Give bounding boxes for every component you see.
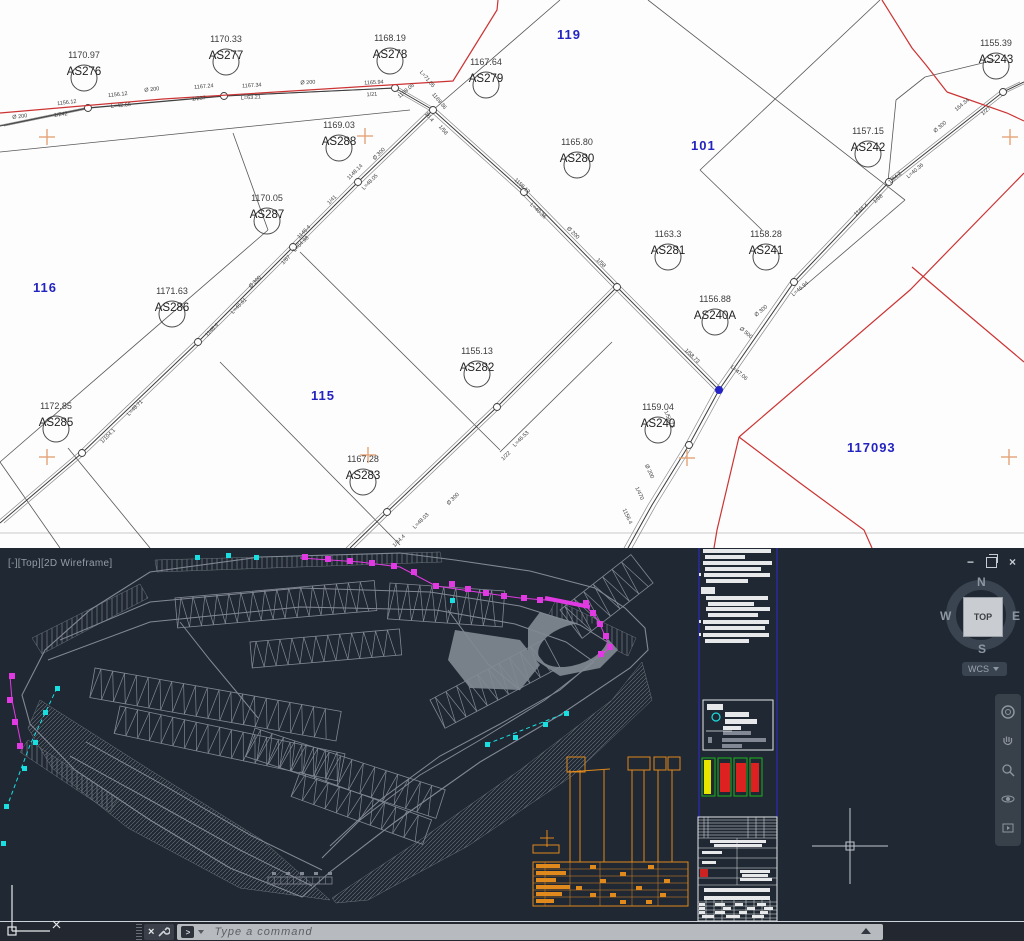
survey-plan-image: Ø 2001156.121/2421156.12Ø 200L=42.661167… <box>0 0 1024 548</box>
survey-point-cyan <box>195 555 200 560</box>
svg-text:Ø 200: Ø 200 <box>300 80 315 87</box>
manhole-id: AS287 <box>250 209 285 221</box>
viewcube-top-face[interactable]: TOP <box>963 597 1003 637</box>
manhole-id: AS279 <box>469 73 504 85</box>
survey-point-magenta <box>17 743 23 749</box>
survey-point-magenta <box>433 583 439 589</box>
manhole-elevation: 1165.80 <box>561 137 593 147</box>
note-text-bar <box>706 607 770 611</box>
survey-point-magenta <box>598 651 604 657</box>
wcs-label: WCS <box>968 664 989 674</box>
survey-point-magenta <box>603 633 609 639</box>
pipe-node <box>430 107 437 114</box>
restore-icon[interactable] <box>986 557 997 568</box>
chart-bar-yellow <box>704 760 711 794</box>
manhole-id: AS242 <box>851 142 886 154</box>
survey-point-cyan <box>43 710 48 715</box>
survey-point-magenta <box>7 697 13 703</box>
svg-text:1/21: 1/21 <box>366 92 377 99</box>
manhole-id: AS283 <box>346 470 381 482</box>
pipe-node <box>384 509 391 516</box>
manhole-id: AS277 <box>209 50 244 62</box>
note-text-bar <box>703 549 771 553</box>
recent-commands-caret-icon[interactable] <box>198 930 204 934</box>
close-icon[interactable]: × <box>1009 556 1016 568</box>
parcel-number: 117093 <box>847 440 896 455</box>
app-window: Ø 2001156.121/2421156.12Ø 200L=42.661167… <box>0 0 1024 941</box>
viewcube-north[interactable]: N <box>977 575 986 589</box>
parcel-number: 101 <box>691 138 716 153</box>
viewcube-east[interactable]: E <box>1012 609 1020 623</box>
note-text-bar <box>706 596 768 600</box>
manhole-id: AS243 <box>979 54 1014 66</box>
survey-point-magenta <box>347 558 353 564</box>
command-input[interactable]: > Type a command <box>177 924 883 940</box>
note-text-bar <box>705 555 745 559</box>
manhole-elevation: 1158.28 <box>750 229 782 239</box>
customize-wrench-icon[interactable] <box>156 925 170 939</box>
manhole-elevation: 1172.85 <box>40 401 72 411</box>
palette-buttons: × <box>144 924 174 940</box>
manhole-elevation: 1157.15 <box>852 126 884 136</box>
manhole-id: AS280 <box>560 153 595 165</box>
survey-point-cyan <box>22 766 27 771</box>
navigation-wheel-icon[interactable] <box>1000 704 1016 720</box>
note-text-bar <box>699 633 701 636</box>
chart-bar-red <box>720 763 730 792</box>
pipe-node <box>392 85 399 92</box>
survey-point-magenta <box>465 586 471 592</box>
parcel-number: 116 <box>33 280 57 295</box>
manhole-id: AS240 <box>641 418 676 430</box>
pipe-node <box>355 179 362 186</box>
survey-point-magenta <box>483 590 489 596</box>
survey-point-cyan <box>513 735 518 740</box>
manhole-id: AS276 <box>67 66 102 78</box>
viewcube-west[interactable]: W <box>940 609 951 623</box>
survey-point-magenta <box>302 554 308 560</box>
manhole-elevation: 1163.3 <box>655 229 682 239</box>
survey-point-magenta <box>9 673 15 679</box>
pipe-node <box>79 450 86 457</box>
svg-text:1/237: 1/237 <box>192 95 206 102</box>
viewport-controls-label[interactable]: [-][Top][2D Wireframe] <box>8 558 112 569</box>
note-text-bar <box>703 620 769 624</box>
note-text-bar <box>701 587 715 594</box>
pipe-node <box>1000 89 1007 96</box>
survey-point-magenta <box>12 719 18 725</box>
survey-point-magenta <box>537 597 543 603</box>
manhole-elevation: 1159.04 <box>642 402 674 412</box>
manhole-id: AS241 <box>749 245 784 257</box>
manhole-elevation: 1171.63 <box>156 286 188 296</box>
ucs-icon <box>0 879 70 941</box>
pipe-node <box>494 404 501 411</box>
command-placeholder[interactable]: Type a command <box>214 926 312 938</box>
manhole-id: AS281 <box>651 245 686 257</box>
manhole-elevation: 1170.33 <box>210 34 242 44</box>
note-text-bar <box>699 620 701 623</box>
parcel-number: 119 <box>557 27 581 42</box>
survey-point-cyan <box>4 804 9 809</box>
viewcube-south[interactable]: S <box>978 642 986 656</box>
survey-point-magenta <box>369 560 375 566</box>
palette-grip[interactable] <box>136 924 142 940</box>
manhole-id: AS282 <box>460 362 495 374</box>
pipe-node <box>614 284 621 291</box>
note-text-bar <box>708 613 758 617</box>
survey-point-magenta <box>325 556 331 562</box>
manhole-elevation: 1170.05 <box>251 193 283 203</box>
note-text-bar <box>706 579 748 583</box>
survey-point-cyan <box>226 553 231 558</box>
survey-point-cyan <box>33 740 38 745</box>
manhole-elevation: 1167.64 <box>470 57 502 67</box>
survey-point-cyan <box>450 598 455 603</box>
survey-point-cyan <box>254 555 259 560</box>
manhole-elevation: 1155.13 <box>461 346 493 356</box>
survey-plan-svg: Ø 2001156.121/2421156.12Ø 200L=42.661167… <box>0 0 1024 548</box>
note-text-bar <box>705 567 761 571</box>
parcel-number: 115 <box>311 388 335 403</box>
navigation-bar[interactable] <box>995 694 1021 846</box>
chart-bar-red <box>736 763 746 792</box>
survey-point-magenta <box>597 621 603 627</box>
note-text-bar <box>703 561 772 565</box>
manhole-elevation: 1155.39 <box>980 38 1012 48</box>
pipe-node <box>221 93 228 100</box>
command-row: × > Type a command <box>0 921 1024 941</box>
junction-dot <box>715 386 723 394</box>
command-palette[interactable]: × > Type a command <box>136 924 883 940</box>
note-text-bar <box>708 602 754 606</box>
manhole-id: AS286 <box>155 302 190 314</box>
survey-point-magenta <box>449 581 455 587</box>
survey-point-cyan <box>564 711 569 716</box>
pipe-node <box>195 339 202 346</box>
manhole-id: AS285 <box>39 417 74 429</box>
manhole-id: AS278 <box>373 49 408 61</box>
manhole-id: AS240A <box>694 310 737 322</box>
showmotion-icon[interactable] <box>1000 820 1016 836</box>
survey-point-cyan <box>543 722 548 727</box>
wcs-dropdown[interactable]: WCS <box>962 662 1007 676</box>
minimize-icon[interactable]: − <box>967 556 974 568</box>
survey-point-cyan <box>55 686 60 691</box>
manhole-elevation: 1170.97 <box>68 50 100 60</box>
note-text-bar <box>705 626 765 630</box>
pipe-node <box>791 279 798 286</box>
manhole-elevation: 1156.88 <box>699 294 731 304</box>
acad-canvas[interactable] <box>0 548 1024 941</box>
survey-point-magenta <box>501 593 507 599</box>
chart-bar-red <box>751 763 759 792</box>
manhole-id: AS288 <box>322 136 357 148</box>
command-prompt-icon[interactable]: > <box>181 926 194 938</box>
survey-point-magenta <box>583 600 589 606</box>
manhole-elevation: 1167.28 <box>347 454 379 464</box>
window-controls: − × <box>967 556 1016 568</box>
survey-point-magenta <box>521 595 527 601</box>
survey-point-magenta <box>411 569 417 575</box>
zoom-icon[interactable] <box>1000 762 1016 778</box>
orbit-icon[interactable] <box>1000 791 1016 807</box>
svg-text:1165.94: 1165.94 <box>364 79 384 86</box>
pipe-node <box>686 442 693 449</box>
note-text-bar <box>704 573 770 577</box>
viewcube[interactable]: N S W E TOP <box>944 578 1020 654</box>
survey-point-cyan <box>485 742 490 747</box>
note-text-bar <box>699 573 701 576</box>
pan-hand-icon[interactable] <box>1000 733 1016 749</box>
survey-point-magenta <box>391 563 397 569</box>
chevron-down-icon <box>993 667 999 671</box>
survey-point-magenta <box>590 610 596 616</box>
autocad-viewport[interactable]: [-][Top][2D Wireframe] − × N S W E TOP W… <box>0 548 1024 941</box>
manhole-elevation: 1168.19 <box>374 33 406 43</box>
survey-point-cyan <box>1 841 6 846</box>
survey-point-magenta <box>607 644 613 650</box>
note-text-bar <box>703 633 769 637</box>
manhole-elevation: 1169.03 <box>323 120 355 130</box>
note-text-bar <box>705 639 749 643</box>
expand-history-icon[interactable] <box>861 928 871 934</box>
close-command-icon[interactable]: × <box>148 927 154 938</box>
